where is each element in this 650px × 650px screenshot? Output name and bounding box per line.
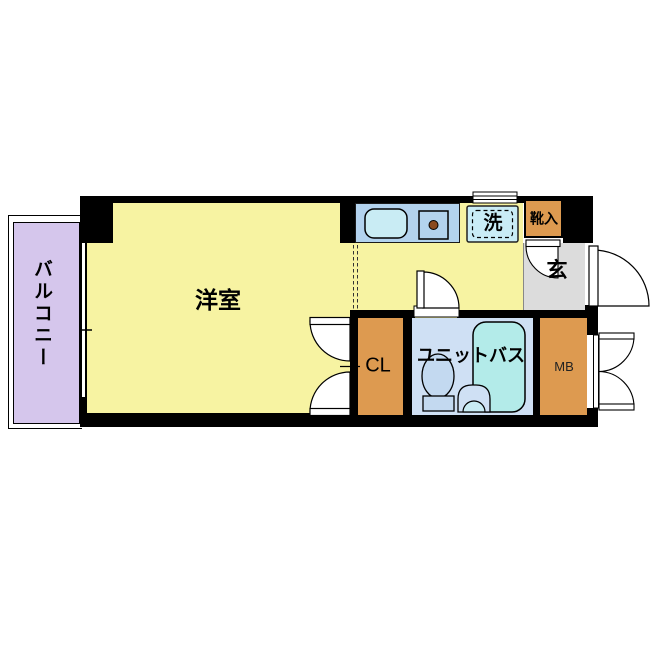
western-room-label: 洋室 bbox=[195, 288, 241, 312]
unit-bath-label: ユニットバス bbox=[417, 347, 525, 366]
entrance-label: 玄 bbox=[547, 260, 568, 282]
wall-left-stub bbox=[80, 397, 87, 415]
meter-box-double-door-swing bbox=[594, 333, 635, 410]
balcony-label: バルコニー bbox=[31, 259, 51, 369]
wall-unitbath-left bbox=[403, 310, 412, 415]
wall-entry-stub bbox=[585, 305, 598, 318]
wall-meterbox-right-bottom bbox=[587, 408, 598, 427]
floor-plan: バルコニー 洋室 洗 靴入 玄 CL ユニットバス MB bbox=[0, 0, 650, 650]
wall-bottom bbox=[80, 413, 598, 427]
meter-box-label: MB bbox=[554, 360, 574, 374]
unit-bath-floor bbox=[412, 318, 533, 415]
wall-stub-kitchen bbox=[340, 196, 355, 243]
wall-block-top-right bbox=[563, 196, 593, 243]
wall-top-left-segment bbox=[80, 196, 473, 203]
entrance-door-swing bbox=[589, 246, 649, 306]
washer-label: 洗 bbox=[483, 214, 502, 234]
sliding-window bbox=[80, 243, 87, 397]
kitchen-counter bbox=[355, 203, 460, 243]
wall-unitbath-right bbox=[533, 310, 540, 415]
louver-window-icon bbox=[473, 192, 517, 203]
wall-closet-left bbox=[350, 310, 358, 415]
shoe-box-label: 靴入 bbox=[530, 212, 558, 227]
wall-pillar-top-left bbox=[80, 196, 113, 243]
wall-hall-right-segment bbox=[457, 310, 598, 318]
closet-label: CL bbox=[365, 356, 391, 377]
